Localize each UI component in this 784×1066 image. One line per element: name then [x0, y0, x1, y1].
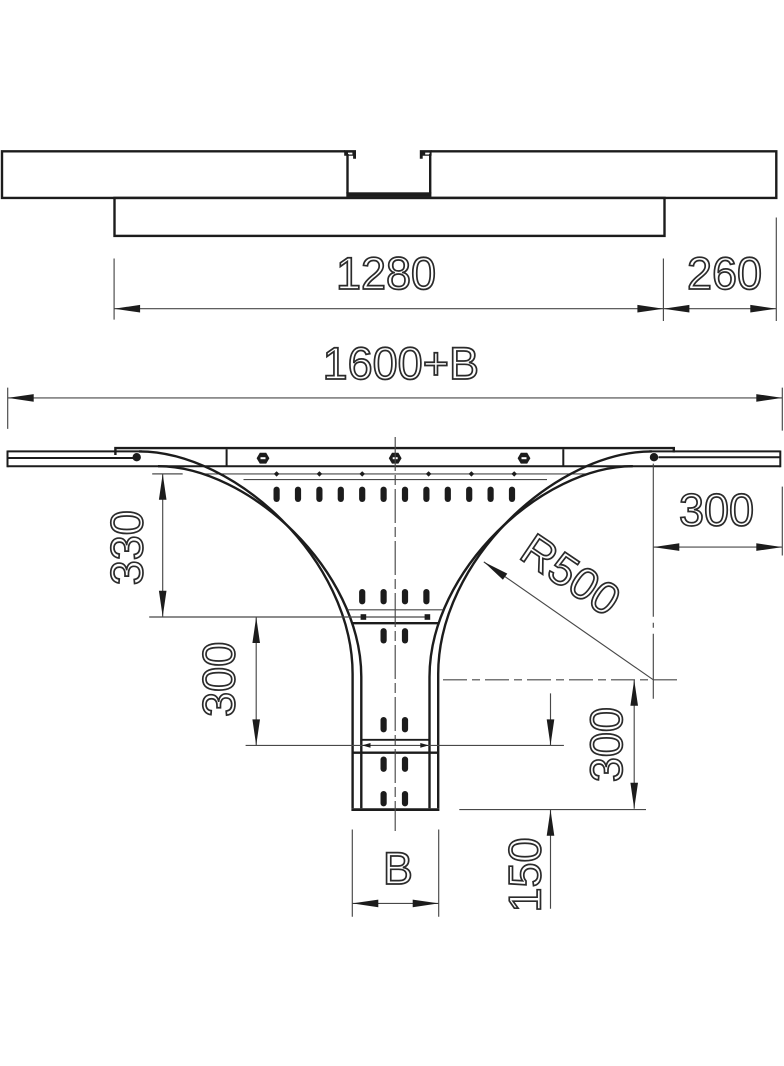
svg-text:300: 300	[194, 642, 245, 717]
svg-text:330: 330	[102, 510, 153, 585]
svg-text:B: B	[383, 843, 413, 894]
svg-text:150: 150	[499, 837, 550, 912]
svg-text:R500: R500	[512, 523, 630, 625]
svg-text:300: 300	[581, 707, 632, 782]
svg-text:260: 260	[687, 248, 762, 299]
svg-text:1600+B: 1600+B	[323, 338, 479, 389]
svg-text:1280: 1280	[336, 248, 436, 299]
svg-text:300: 300	[679, 484, 754, 535]
